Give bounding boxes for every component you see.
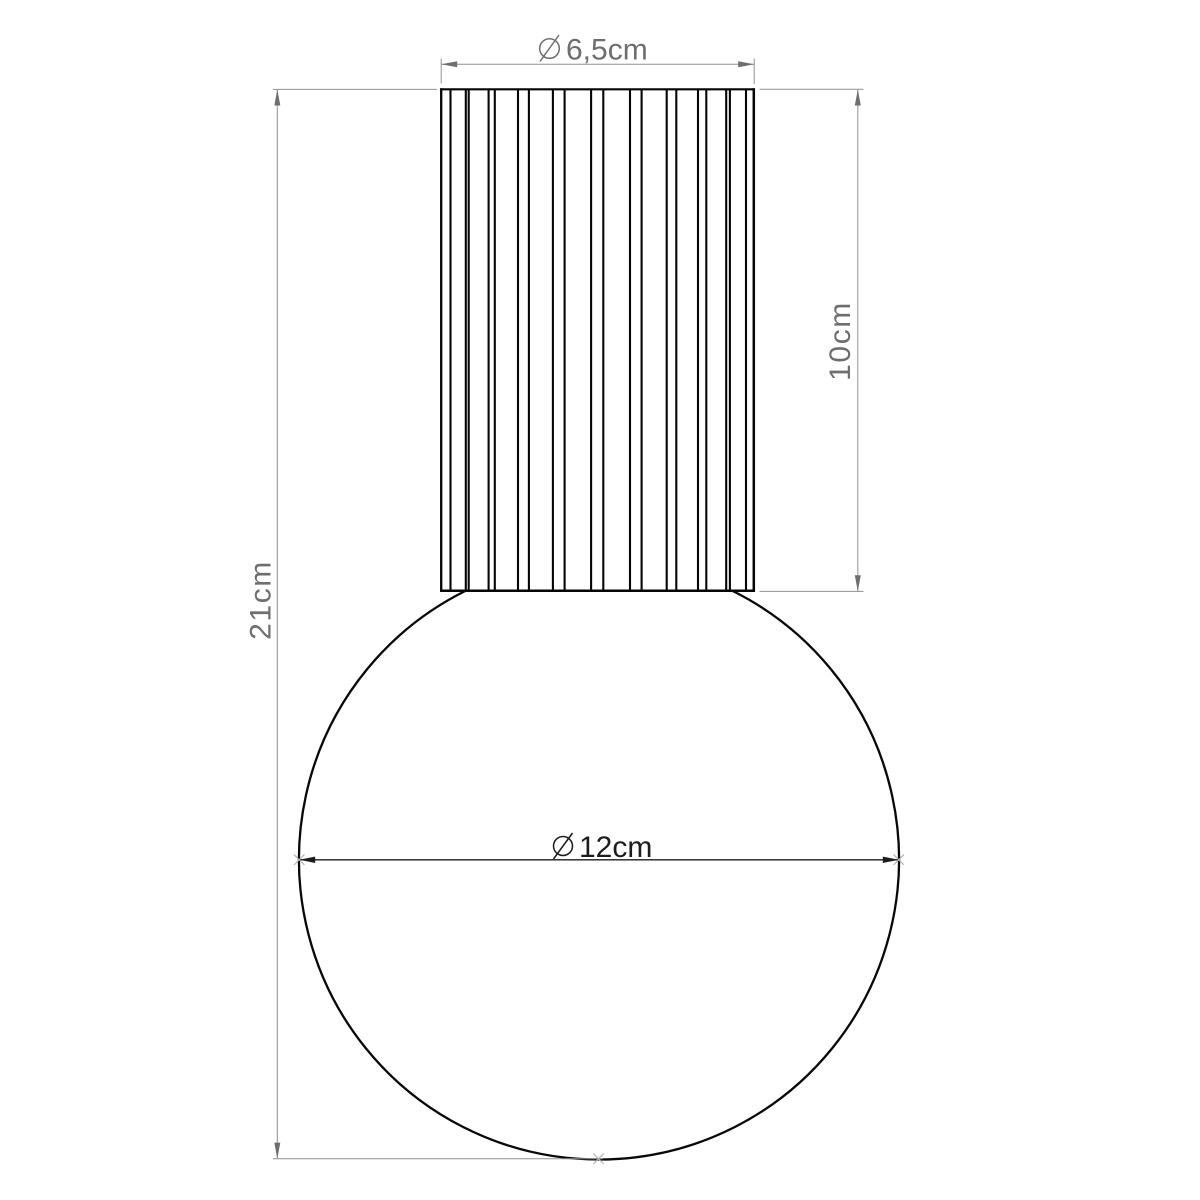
svg-text:10cm: 10cm: [824, 301, 857, 381]
svg-text:12cm: 12cm: [579, 831, 652, 864]
svg-text:21cm: 21cm: [244, 560, 277, 640]
svg-text:6,5cm: 6,5cm: [566, 34, 648, 67]
